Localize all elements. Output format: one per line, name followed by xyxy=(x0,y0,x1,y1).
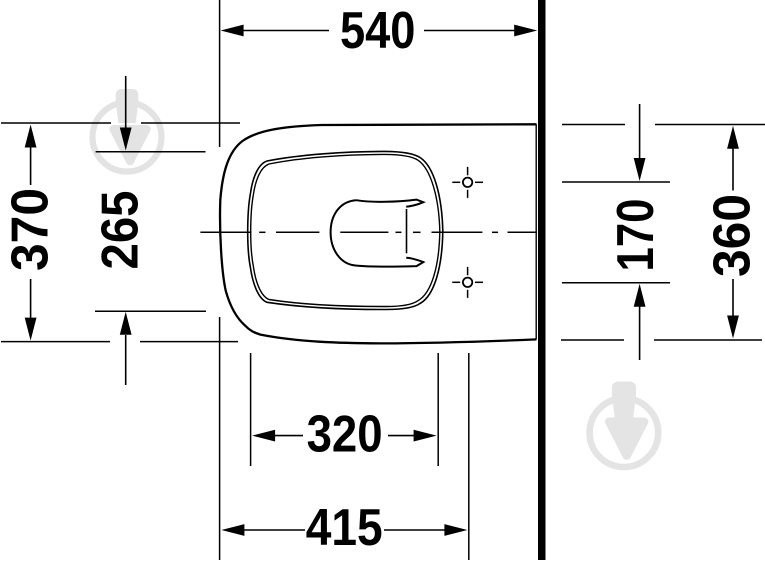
svg-text:360: 360 xyxy=(703,194,761,277)
svg-text:265: 265 xyxy=(92,191,150,270)
svg-text:370: 370 xyxy=(1,188,59,271)
svg-text:415: 415 xyxy=(306,499,383,557)
svg-text:320: 320 xyxy=(307,405,383,463)
svg-text:540: 540 xyxy=(340,2,416,60)
svg-text:170: 170 xyxy=(607,199,665,272)
